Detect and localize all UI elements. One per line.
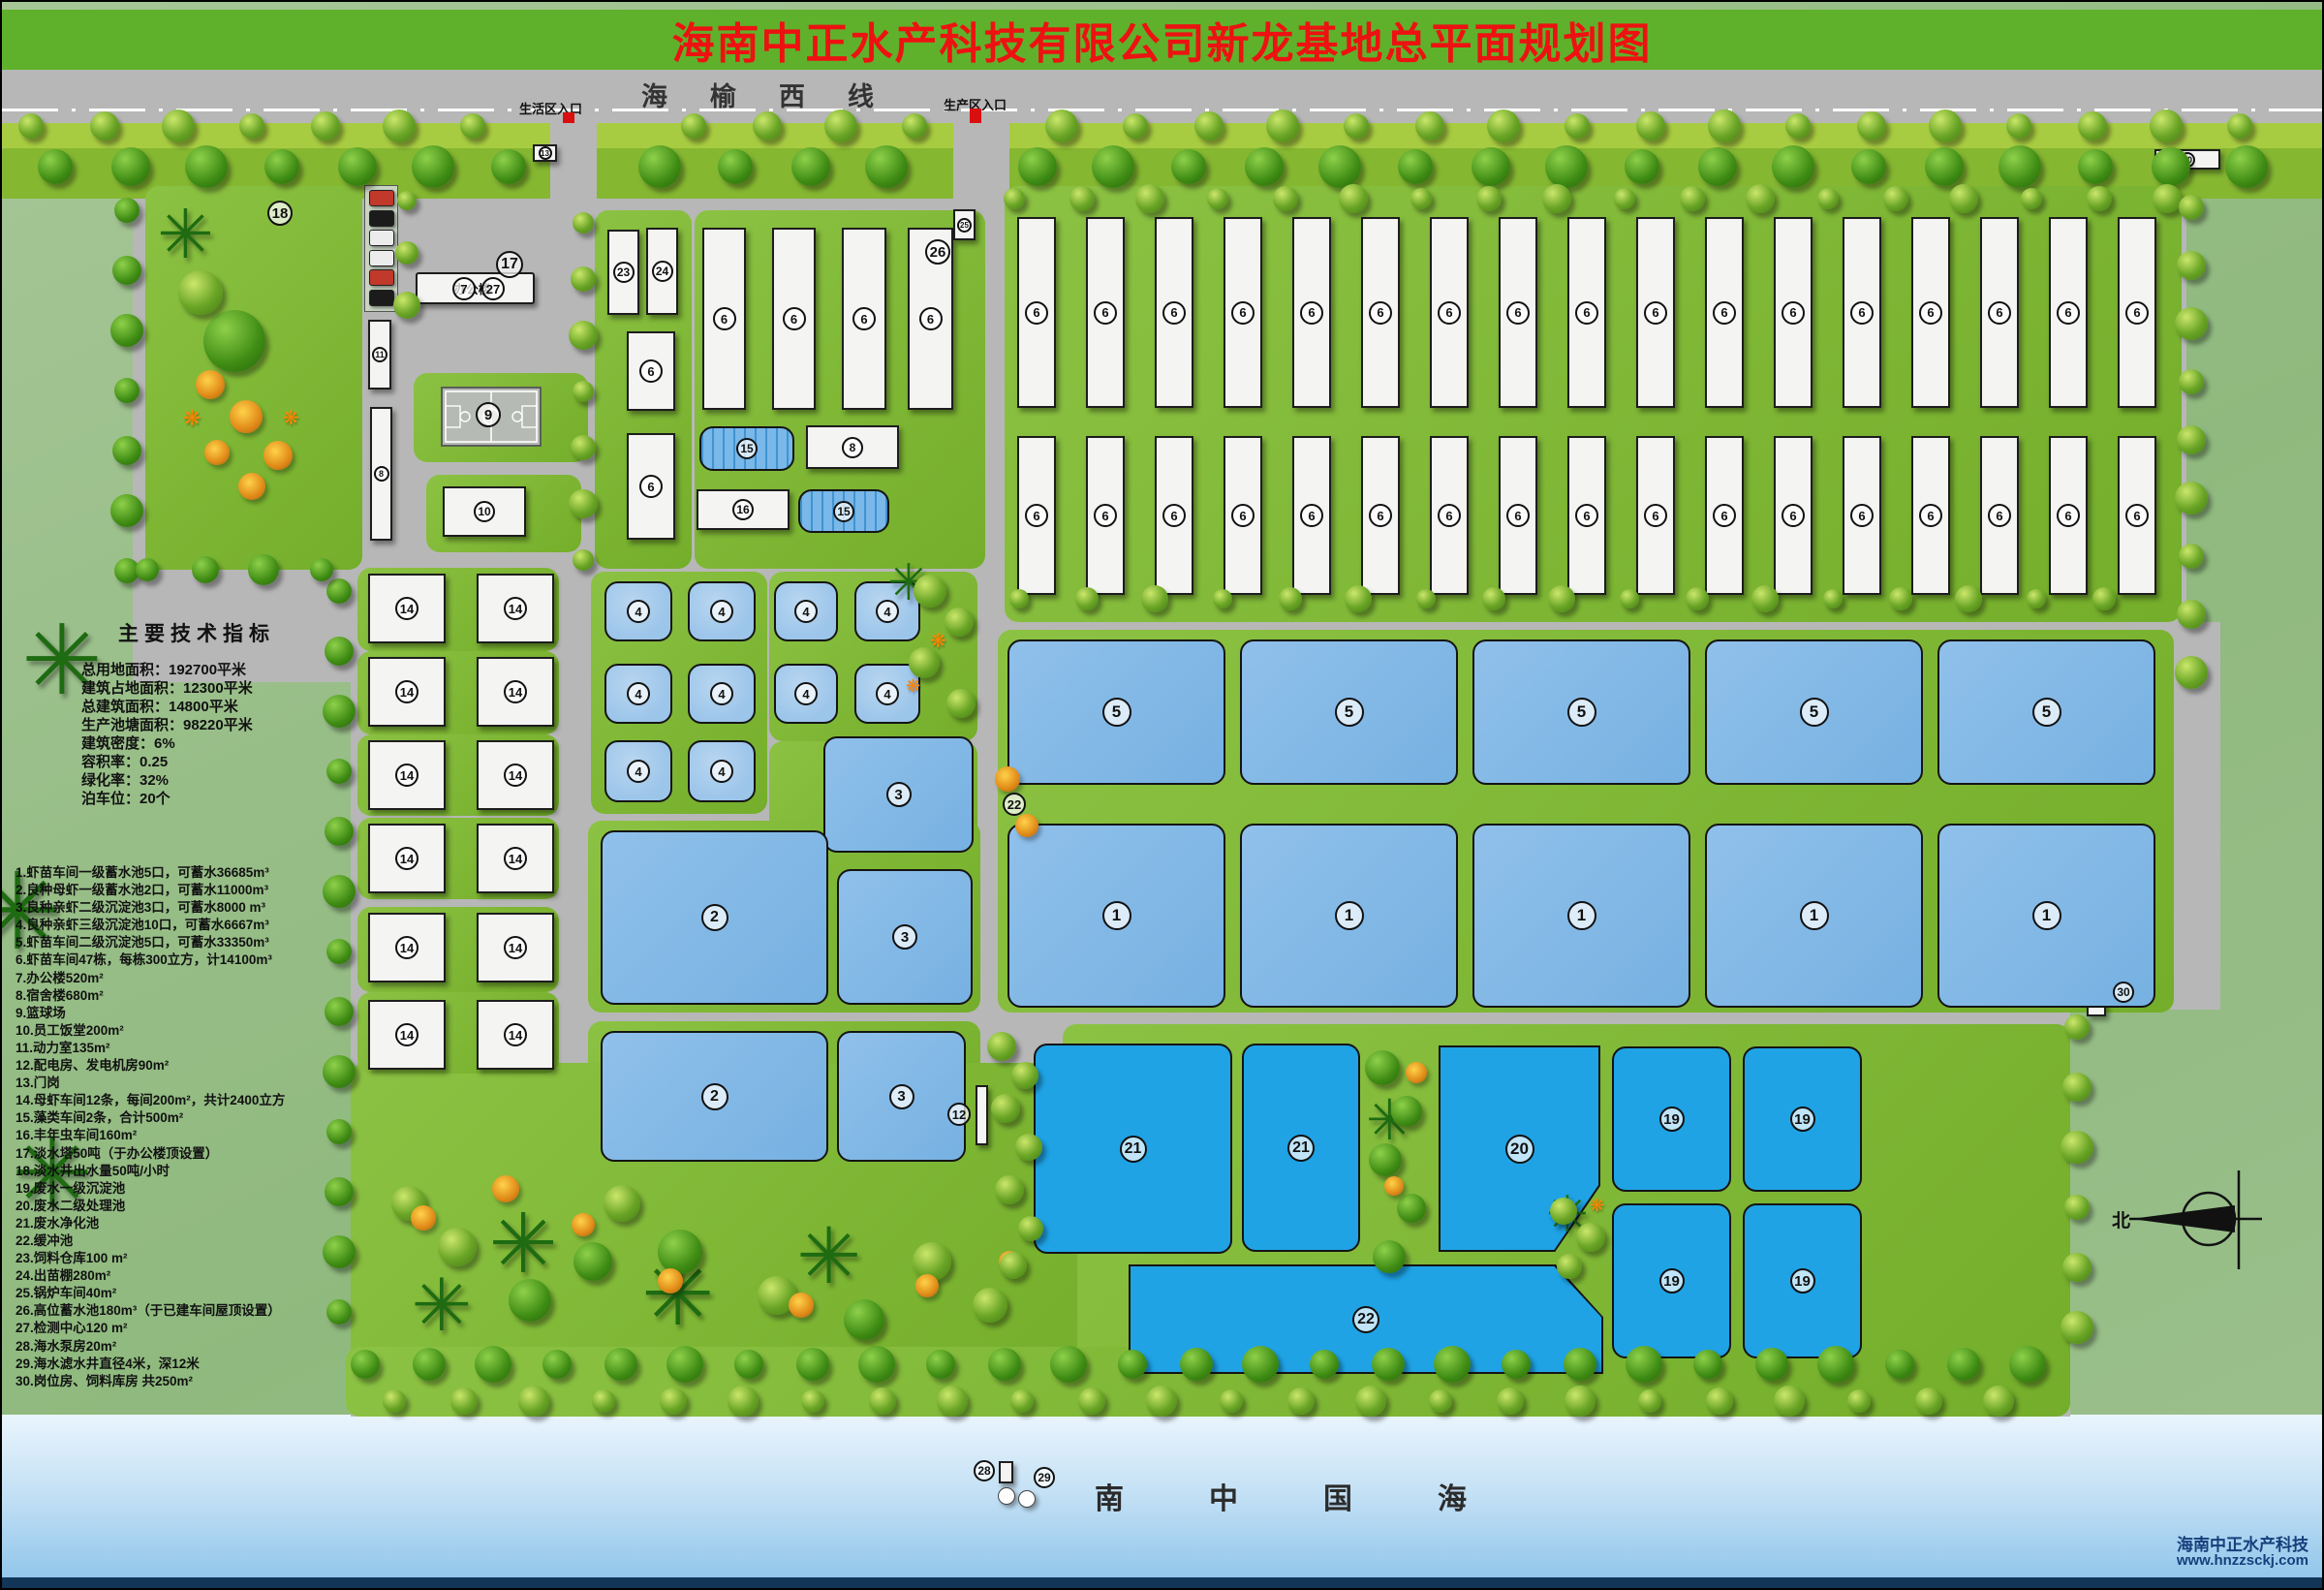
pond-2: 2	[601, 830, 828, 1005]
north-compass-icon: 北	[2112, 1169, 2277, 1275]
legend-panel: 1.虾苗车间一级蓄水池5口，可蓄水36685m³2.良种母虾一级蓄水池2口，可蓄…	[15, 864, 350, 1390]
pond-4: 4	[604, 740, 672, 802]
tree-icon	[946, 689, 976, 718]
tree-icon	[1373, 1240, 1406, 1273]
marker-6: 6	[2125, 504, 2149, 527]
marker-5: 5	[1335, 698, 1364, 727]
tree-icon	[1180, 1348, 1213, 1381]
marker-6: 6	[852, 307, 876, 330]
building-11: 11	[368, 320, 391, 390]
marker-14: 14	[504, 597, 527, 620]
shrub-icon	[204, 440, 230, 465]
legend-item: 2.良种母虾一级蓄水池2口，可蓄水11000m³	[15, 882, 350, 899]
building-14: 14	[368, 824, 446, 893]
marker-6: 6	[1988, 301, 2011, 325]
building-6: 6	[1361, 217, 1400, 408]
tree-icon	[518, 1386, 549, 1417]
marker-21: 21	[1287, 1135, 1315, 1162]
building-23: 23	[607, 230, 639, 315]
tree-icon	[973, 1288, 1007, 1323]
marker-7: 7	[452, 277, 476, 300]
marker-14: 14	[504, 680, 527, 703]
tree-icon	[573, 212, 594, 234]
marker-14: 14	[504, 1023, 527, 1046]
indicator-line: 生产池塘面积：98220平米	[81, 716, 353, 734]
legend-item: 8.宿舍楼680m²	[15, 987, 350, 1005]
tree-icon	[1135, 184, 1164, 213]
tree-icon	[571, 266, 596, 292]
tree-icon	[987, 1032, 1016, 1061]
pond-1: 1	[1937, 824, 2155, 1008]
building-6: 6	[1086, 217, 1125, 408]
tree-icon	[1273, 186, 1298, 211]
tree-icon	[239, 113, 264, 139]
pond-19: 19	[1612, 1046, 1731, 1192]
tree-icon	[2006, 113, 2031, 139]
pond-19: 19	[1743, 1046, 1862, 1192]
tree-icon	[1018, 1216, 1043, 1241]
tree-icon	[450, 1387, 478, 1415]
building-6: 6	[1911, 436, 1950, 595]
building-14: 14	[477, 740, 554, 810]
legend-item: 4.良种亲虾三级沉淀池10口，可蓄水6667m³	[15, 917, 350, 934]
marker-14: 14	[395, 597, 418, 620]
building-6: 6	[1361, 436, 1400, 595]
tree-icon	[988, 1348, 1021, 1381]
building-14: 14	[477, 1000, 554, 1070]
marker-24: 24	[652, 261, 673, 282]
car-icon	[369, 190, 394, 206]
marker-6: 6	[1438, 301, 1461, 325]
tree-icon	[311, 111, 340, 140]
tree-icon	[136, 558, 159, 581]
tree-icon	[1949, 184, 1978, 213]
tree-icon	[1018, 147, 1057, 186]
tree-icon	[1680, 186, 1705, 211]
plan-title: 海南中正水产科技有限公司新龙基地总平面规划图	[672, 9, 1653, 71]
tree-icon	[1620, 589, 1639, 608]
marker-4: 4	[710, 600, 733, 623]
tree-icon	[38, 149, 73, 184]
sea-name-label: 南中国海	[1095, 1475, 1552, 1517]
legend-item: 9.篮球场	[15, 1005, 350, 1022]
tree-icon	[1885, 1350, 1914, 1379]
marker-6: 6	[1850, 301, 1874, 325]
legend-item: 16.丰年虫车间160m²	[15, 1127, 350, 1144]
marker-6: 6	[1231, 301, 1255, 325]
marker-15: 15	[833, 501, 854, 522]
tree-icon	[1429, 1389, 1452, 1413]
legend-item: 22.缓冲池	[15, 1232, 350, 1250]
tree-icon	[542, 1350, 572, 1379]
shrub-icon	[411, 1205, 436, 1231]
building-6: 6	[1567, 217, 1606, 408]
tree-icon	[1266, 109, 1299, 142]
marker-6: 6	[1644, 301, 1667, 325]
marker-4: 4	[876, 682, 899, 705]
marker-wrap: 12	[947, 1103, 971, 1126]
svg-text:北: 北	[2112, 1210, 2130, 1231]
legend-item: 25.锅炉车间40m²	[15, 1285, 350, 1302]
building-6: 6	[1430, 436, 1469, 595]
tree-icon	[2225, 145, 2268, 188]
indicator-line: 绿化率：32%	[81, 771, 353, 790]
tree-icon	[2153, 184, 2182, 213]
marker-14: 14	[395, 936, 418, 959]
marker-6: 6	[639, 359, 663, 383]
marker-6: 6	[783, 307, 806, 330]
marker-4: 4	[627, 600, 650, 623]
tree-icon	[1817, 188, 1839, 209]
tree-icon	[995, 1175, 1024, 1204]
tree-icon	[1542, 184, 1571, 213]
tree-icon	[2078, 111, 2107, 140]
shrub-icon	[196, 370, 225, 399]
tree-icon	[1883, 186, 1908, 211]
tree-icon	[1415, 111, 1444, 140]
tree-icon	[1146, 1386, 1177, 1417]
pond-2: 2	[601, 1031, 828, 1162]
marker-6: 6	[1506, 301, 1530, 325]
tree-icon	[991, 1094, 1020, 1123]
marker-1: 1	[2032, 901, 2061, 930]
tree-icon	[2092, 587, 2116, 610]
flower-icon: ❋	[1590, 1197, 1604, 1214]
marker-6: 6	[2057, 301, 2080, 325]
tree-icon	[1245, 147, 1284, 186]
building-6: 6	[702, 228, 746, 410]
tree-icon	[491, 149, 526, 184]
entrance-road	[953, 123, 1009, 201]
shrub-icon	[1384, 1176, 1404, 1196]
tree-icon	[326, 578, 352, 604]
building-6: 6	[1430, 217, 1469, 408]
tree-icon	[1472, 147, 1510, 186]
tree-icon	[2179, 195, 2204, 220]
building-6: 6	[1636, 217, 1675, 408]
tree-icon	[1889, 587, 1912, 610]
tree-icon	[310, 558, 333, 581]
tree-icon	[1706, 1387, 1733, 1415]
tree-icon	[112, 436, 141, 465]
tree-icon	[573, 1242, 612, 1281]
building-6: 6	[1155, 217, 1193, 408]
tree-icon	[110, 494, 143, 527]
tree-icon	[1009, 589, 1029, 608]
car-icon	[369, 210, 394, 227]
tree-icon	[1545, 145, 1588, 188]
palm-tree-icon: ✳	[157, 201, 214, 268]
marker-2: 2	[701, 904, 728, 931]
palm-tree-icon: ✳	[489, 1203, 558, 1286]
tree-icon	[2177, 251, 2206, 280]
marker-22: 22	[1352, 1306, 1379, 1333]
building-14: 14	[368, 913, 446, 982]
marker-6: 6	[1782, 504, 1805, 527]
tree-icon	[1751, 585, 1779, 612]
pond-15: 15	[798, 489, 889, 533]
legend-item: 11.动力室135m²	[15, 1040, 350, 1057]
marker-16: 16	[732, 499, 754, 520]
tree-icon	[1015, 1134, 1042, 1161]
marker-wrap: 18	[267, 201, 293, 226]
marker-9: 9	[476, 402, 501, 427]
tree-icon	[178, 270, 223, 315]
tree-icon	[1141, 585, 1168, 612]
marker-5: 5	[1102, 698, 1131, 727]
legend-item: 1.虾苗车间一级蓄水池5口，可蓄水36685m³	[15, 864, 350, 882]
tree-icon	[1576, 1223, 1605, 1252]
tree-icon	[1339, 184, 1368, 213]
marker-6: 6	[1713, 504, 1736, 527]
pond-5: 5	[1240, 639, 1458, 785]
building-6: 6	[2049, 436, 2088, 595]
tree-icon	[248, 554, 279, 585]
marker-15: 15	[736, 438, 758, 459]
pond-4: 4	[688, 581, 756, 641]
tree-icon	[383, 109, 416, 142]
marker-6: 6	[1369, 301, 1392, 325]
pond-5: 5	[1007, 639, 1225, 785]
building-6: 6	[627, 433, 675, 540]
shrub-icon	[995, 766, 1020, 792]
pond-21: 21	[1034, 1044, 1232, 1254]
tree-icon	[2009, 1346, 2046, 1383]
tree-icon	[2064, 1195, 2090, 1220]
marker-wrap: 9	[476, 402, 501, 427]
building-6: 6	[1705, 217, 1744, 408]
tree-icon	[111, 147, 150, 186]
tree-icon	[1925, 147, 1964, 186]
building-10: 10	[443, 486, 526, 537]
tree-icon	[1851, 149, 1886, 184]
marker-14: 14	[504, 764, 527, 787]
tree-icon	[203, 310, 265, 372]
car-icon	[369, 290, 394, 306]
marker-wrap: 26	[925, 239, 950, 265]
marker-6: 6	[1919, 301, 1942, 325]
building-6: 6	[1292, 217, 1331, 408]
pond-4: 4	[774, 664, 838, 724]
building-6: 6	[2118, 436, 2156, 595]
tree-icon	[1947, 1348, 1980, 1381]
building-14: 14	[477, 824, 554, 893]
tree-icon	[824, 109, 857, 142]
shrub-icon	[238, 473, 265, 500]
tree-icon	[475, 1346, 511, 1383]
indicator-line: 建筑密度：6%	[81, 734, 353, 753]
indicator-line: 总用地面积：192700平米	[81, 661, 353, 679]
marker-6: 6	[1575, 301, 1598, 325]
building-small	[999, 1461, 1013, 1483]
building-25: 25	[953, 209, 976, 240]
indicators-title: 主要技术指标	[118, 618, 353, 647]
marker-19: 19	[1790, 1107, 1815, 1132]
marker-12: 12	[947, 1103, 971, 1126]
marker-6: 6	[919, 307, 943, 330]
legend-item: 23.饲料仓库100 m²	[15, 1250, 350, 1267]
marker-1: 1	[1800, 901, 1829, 930]
marker-4: 4	[627, 682, 650, 705]
marker-4: 4	[627, 760, 650, 783]
pond-5: 5	[1472, 639, 1690, 785]
marker-28: 28	[974, 1460, 995, 1481]
tree-icon	[666, 1346, 703, 1383]
legend-item: 10.员工饭堂200m²	[15, 1022, 350, 1040]
building-6: 6	[1155, 436, 1193, 595]
pond-19: 19	[1743, 1203, 1862, 1358]
legend-item: 19.废水一级沉淀池	[15, 1180, 350, 1198]
building-6: 6	[1017, 436, 1056, 595]
tree-icon	[264, 149, 299, 184]
pond-1: 1	[1007, 824, 1225, 1008]
legend-item: 12.配电房、发电机房90m²	[15, 1057, 350, 1075]
marker-14: 14	[395, 680, 418, 703]
pond-3: 3	[837, 1031, 966, 1162]
bottom-border-bar	[2, 1577, 2322, 1590]
flower-icon: ❋	[906, 677, 920, 695]
tree-icon	[658, 1230, 702, 1274]
tree-icon	[1242, 1346, 1279, 1383]
tree-icon	[1774, 1386, 1805, 1417]
tree-icon	[2021, 188, 2042, 209]
tree-icon	[1755, 1348, 1788, 1381]
tree-icon	[1213, 589, 1232, 608]
tree-icon	[18, 113, 44, 139]
marker-18: 18	[267, 201, 293, 226]
marker-1: 1	[1335, 901, 1364, 930]
tree-icon	[1279, 587, 1302, 610]
tree-icon	[351, 1350, 380, 1379]
marker-6: 6	[1782, 301, 1805, 325]
building-6: 6	[1843, 217, 1881, 408]
tree-icon	[728, 1386, 759, 1417]
legend-item: 21.废水净化池	[15, 1215, 350, 1232]
flower-icon: ❋	[930, 632, 946, 651]
seawater-well-icon	[1018, 1490, 1036, 1508]
tree-icon	[791, 147, 830, 186]
entrance-road	[550, 123, 597, 201]
legend-item: 17.淡水塔50吨（于办公楼顶设置）	[15, 1145, 350, 1163]
marker-20: 20	[1505, 1135, 1534, 1164]
tree-icon	[1497, 1387, 1524, 1415]
tree-icon	[1092, 145, 1134, 188]
tree-icon	[2175, 307, 2208, 340]
marker-4: 4	[794, 600, 818, 623]
building-6: 6	[1774, 217, 1813, 408]
tree-icon	[2177, 425, 2206, 454]
legend-item: 30.岗位房、饲料库房 共250m²	[15, 1373, 350, 1390]
tree-icon	[801, 1389, 824, 1413]
legend-item: 29.海水滤水井直径4米，深12米	[15, 1356, 350, 1373]
building-8: 8	[370, 407, 392, 541]
marker-6: 6	[1438, 504, 1461, 527]
tree-icon	[114, 378, 139, 403]
marker-6: 6	[1025, 301, 1048, 325]
tree-icon	[1565, 1386, 1596, 1417]
building-6: 6	[1567, 436, 1606, 595]
tree-icon	[1004, 188, 1025, 209]
building-6: 6	[627, 331, 675, 411]
tree-icon	[1502, 1350, 1531, 1379]
legend-item: 3.良种亲虾二级沉淀池3口，可蓄水8000 m³	[15, 899, 350, 917]
building-6: 6	[1843, 436, 1881, 595]
tree-icon	[2064, 1014, 2090, 1040]
marker-6: 6	[1713, 301, 1736, 325]
tree-icon	[2087, 186, 2112, 211]
marker-4: 4	[710, 682, 733, 705]
building-6: 6	[1086, 436, 1125, 595]
legend-item: 5.虾苗车间二级沉淀池5口，可蓄水33350m³	[15, 934, 350, 951]
marker-6: 6	[1025, 504, 1048, 527]
tree-icon	[1686, 587, 1709, 610]
pond-15: 15	[699, 426, 794, 471]
tree-icon	[1698, 147, 1737, 186]
building-6: 6	[2049, 217, 2088, 408]
legend-item: 27.检测中心120 m²	[15, 1320, 350, 1337]
tree-icon	[592, 1389, 615, 1413]
tree-icon	[1344, 113, 1369, 139]
tree-icon	[1482, 587, 1505, 610]
car-icon	[369, 250, 394, 266]
tree-icon	[1050, 1346, 1087, 1383]
marker-wrap: 22	[1003, 793, 1026, 816]
legend-item: 15.藻类车间2条，合计500m²	[15, 1109, 350, 1127]
tree-icon	[571, 435, 596, 460]
building-6: 6	[1499, 217, 1537, 408]
tree-icon	[573, 549, 594, 571]
tree-icon	[112, 256, 141, 285]
legend-item: 28.海水泵房20m²	[15, 1338, 350, 1356]
marker-2: 2	[701, 1083, 728, 1110]
tree-icon	[1391, 1096, 1422, 1127]
tree-icon	[325, 817, 354, 846]
tree-icon	[1355, 1386, 1386, 1417]
marker-wrap: 17	[496, 251, 523, 278]
legend-item: 13.门岗	[15, 1075, 350, 1092]
tree-icon	[844, 1299, 884, 1340]
marker-wrap: 30	[2113, 982, 2134, 1003]
tree-icon	[604, 1185, 640, 1222]
marker-3: 3	[889, 1084, 914, 1109]
marker-30: 30	[2113, 982, 2134, 1003]
tree-icon	[1118, 1350, 1147, 1379]
building-14: 14	[368, 657, 446, 727]
marker-6: 6	[1850, 504, 1874, 527]
tree-icon	[1194, 111, 1224, 140]
tree-icon	[660, 1387, 687, 1415]
flower-icon: ❋	[183, 408, 201, 429]
marker-6: 6	[1369, 504, 1392, 527]
building-6: 6	[1980, 436, 2019, 595]
marker-19: 19	[1790, 1268, 1815, 1294]
pond-4: 4	[774, 581, 838, 641]
tree-icon	[397, 191, 417, 210]
palm-tree-icon: ✳	[412, 1269, 473, 1342]
shrub-icon	[263, 441, 293, 470]
tree-icon	[1564, 1348, 1596, 1381]
tree-icon	[796, 1348, 829, 1381]
tree-icon	[2062, 1073, 2092, 1102]
tree-icon	[1123, 113, 1148, 139]
shrub-icon	[572, 1213, 595, 1236]
marker-23: 23	[613, 262, 635, 283]
tree-icon	[1398, 149, 1433, 184]
tree-icon	[869, 1387, 896, 1415]
technical-indicators-panel: 主要技术指标 总用地面积：192700平米建筑占地面积：12300平米总建筑面积…	[81, 618, 353, 808]
marker-13: 13	[539, 146, 552, 160]
tree-icon	[1915, 1387, 1942, 1415]
